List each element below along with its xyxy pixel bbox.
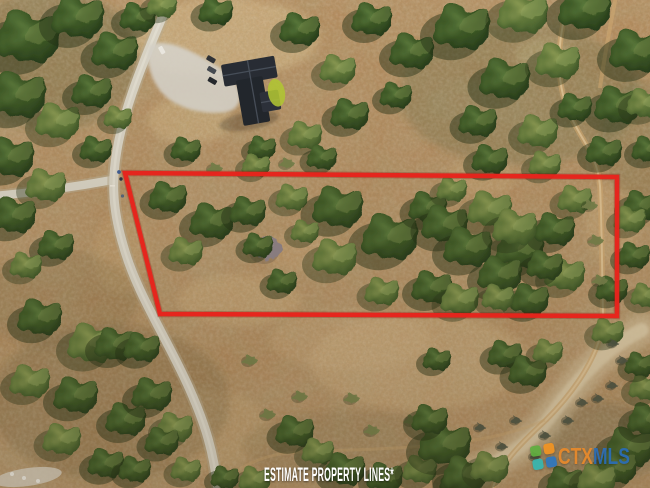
aerial-photo: ESTIMATE PROPERTY LINES* CTXMLS	[0, 0, 650, 488]
pinwheel-petal-bottom-right	[545, 456, 557, 468]
pinwheel-petal-top-left	[530, 445, 542, 457]
ctxmls-pinwheel-icon	[530, 443, 557, 470]
aerial-scene	[0, 0, 650, 488]
pinwheel-petal-bottom-left	[532, 458, 544, 470]
property-lines-disclaimer: ESTIMATE PROPERTY LINES*	[264, 466, 394, 485]
pinwheel-petal-top-right	[543, 443, 555, 455]
shading-overlay	[0, 0, 650, 488]
ctxmls-watermark: CTXMLS	[530, 443, 650, 470]
ctxmls-wordmark: CTXMLS	[558, 443, 630, 470]
brand-suffix: MLS	[593, 443, 630, 469]
brand-prefix: CTX	[558, 443, 593, 469]
